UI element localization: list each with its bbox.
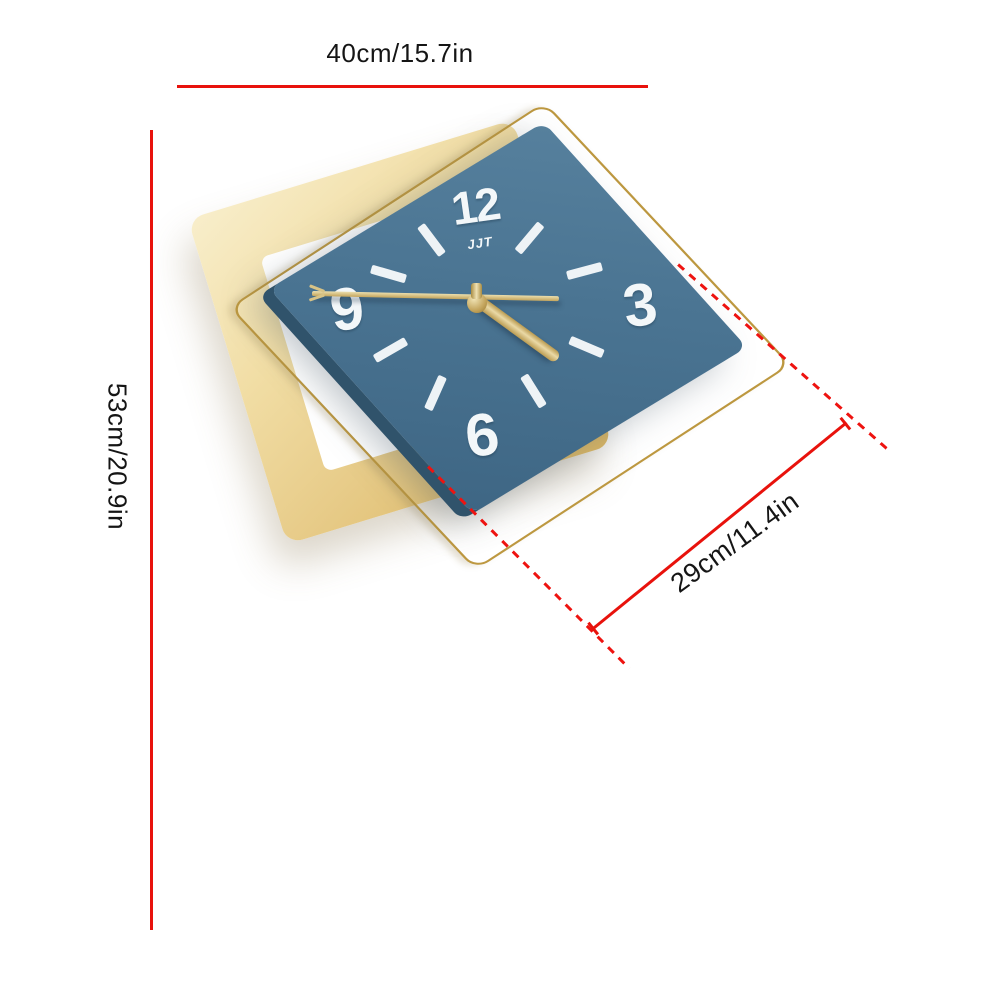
product-dimension-diagram: 40cm/15.7in 53cm/20.9in 12 3 6 9 JJT 29c… [0,0,1000,1000]
width-dimension-line [177,85,648,88]
clock-center-pin-cap [471,278,482,287]
width-dimension-label: 40cm/15.7in [250,38,550,69]
numeral-12: 12 [448,176,502,236]
clock-face-dimension-label: 29cm/11.4in [596,436,873,649]
height-dimension-label: 53cm/20.9in [102,307,133,607]
height-dimension-line [150,130,153,930]
